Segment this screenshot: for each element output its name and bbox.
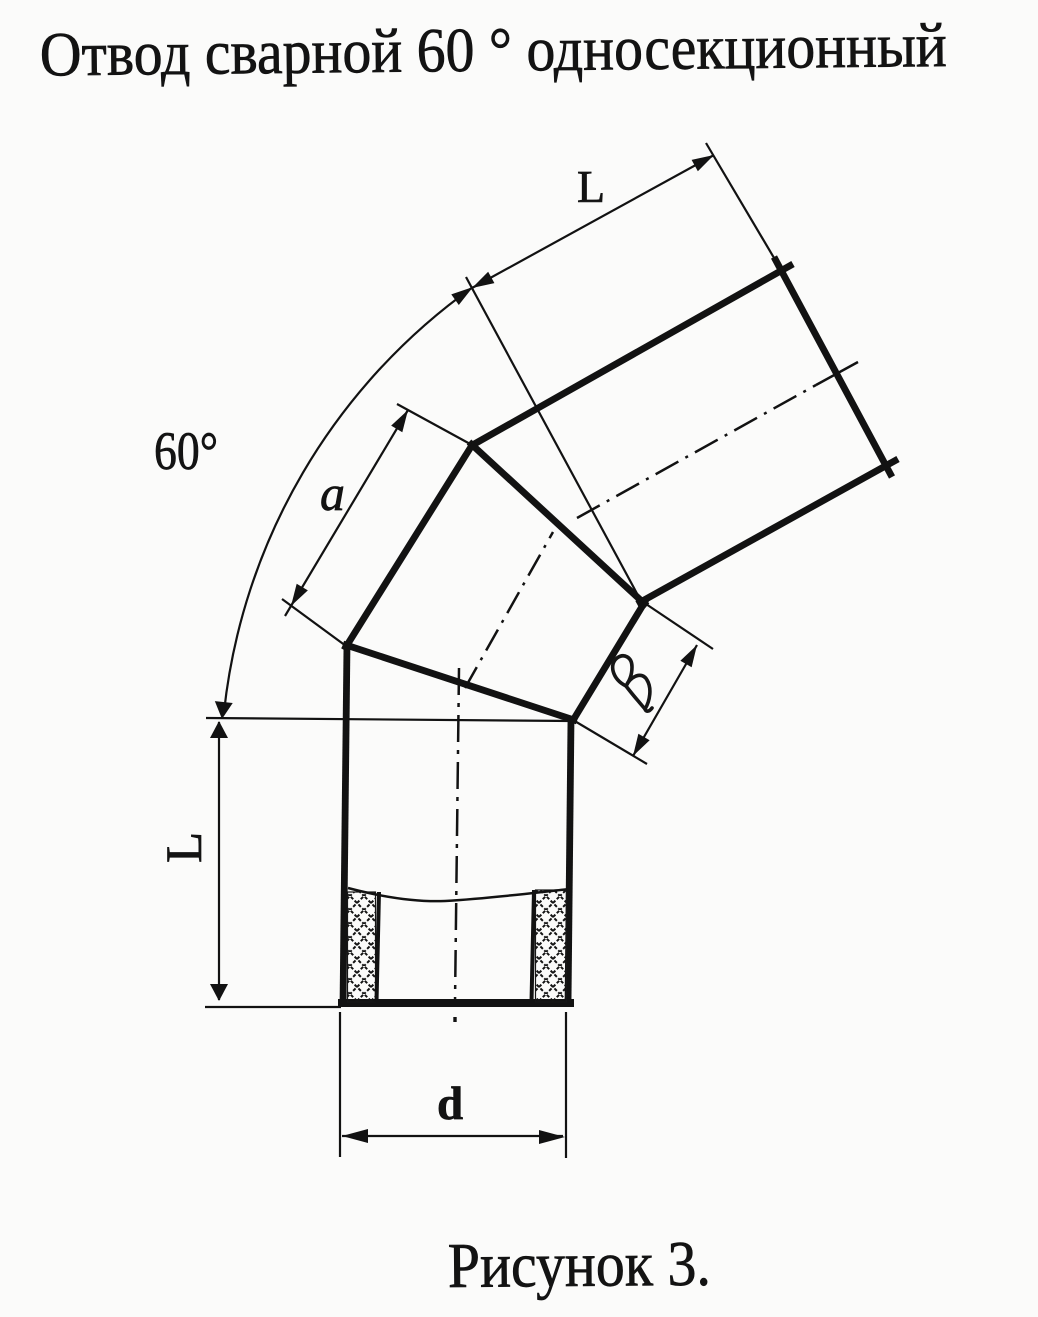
svg-text:L: L xyxy=(157,832,213,863)
svg-text:Отвод сварной 60 ° односекцион: Отвод сварной 60 ° односекционный xyxy=(39,10,947,89)
svg-text:a: a xyxy=(320,465,345,521)
svg-text:Рисунок 3.: Рисунок 3. xyxy=(448,1228,712,1301)
svg-text:d: d xyxy=(437,1078,463,1130)
svg-text:L: L xyxy=(577,161,605,212)
svg-text:60°: 60° xyxy=(154,421,218,481)
